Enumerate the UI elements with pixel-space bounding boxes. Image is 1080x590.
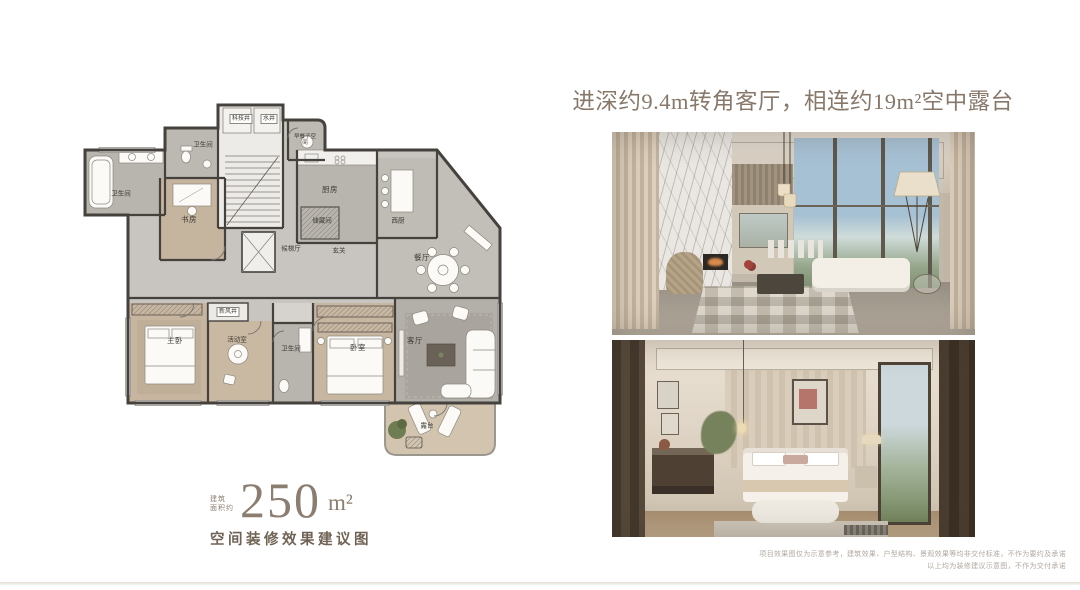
dining-table-icon <box>428 255 459 286</box>
area-block: 建筑 面积约 250 m² 空间装修效果建议图 <box>210 478 420 549</box>
headline: 进深约9.4m转角客厅，相连约19m²空中露台 <box>570 84 1016 116</box>
area-prefix: 建筑 面积约 <box>210 495 234 513</box>
brochure-page: { "page": { "background": "#ffffff" }, "… <box>0 0 1080 590</box>
elevator-icon <box>242 232 275 272</box>
disclaimer: 项目效果图仅为示意参考，建筑效果、户型结构、景观效果等均非交付标准，不作为要约及… <box>646 549 1066 572</box>
toilet-icon <box>182 151 191 163</box>
area-line: 建筑 面积约 250 m² <box>210 478 420 522</box>
photo-vignette <box>612 132 975 335</box>
page-edge-shadow <box>0 582 1080 585</box>
floor-plan: 科技井水井卫生间早餐子空间卫生间书房厨房储藏间西厨候梯厅玄关餐厅新风井主卧活动室… <box>75 98 505 458</box>
island-icon <box>391 170 413 212</box>
area-value: 250 <box>240 478 321 522</box>
storage-icon <box>301 207 339 239</box>
plan-caption: 空间装修效果建议图 <box>210 528 420 549</box>
toilet-icon <box>279 380 289 393</box>
terrace-area <box>385 398 495 455</box>
living-room-photo <box>612 132 975 335</box>
floor-plan-drawing <box>75 98 505 458</box>
bathtub-icon <box>89 156 113 208</box>
disclaimer-line: 以上均为装修建议示意图，不作为交付承诺 <box>646 561 1066 573</box>
disclaimer-line: 项目效果图仅为示意参考，建筑效果、户型结构、景观效果等均非交付标准，不作为要约及… <box>646 549 1066 561</box>
area-unit: m² <box>328 490 353 516</box>
bedroom-photo <box>612 340 975 537</box>
photo-vignette <box>612 340 975 537</box>
desk-icon <box>173 184 211 206</box>
